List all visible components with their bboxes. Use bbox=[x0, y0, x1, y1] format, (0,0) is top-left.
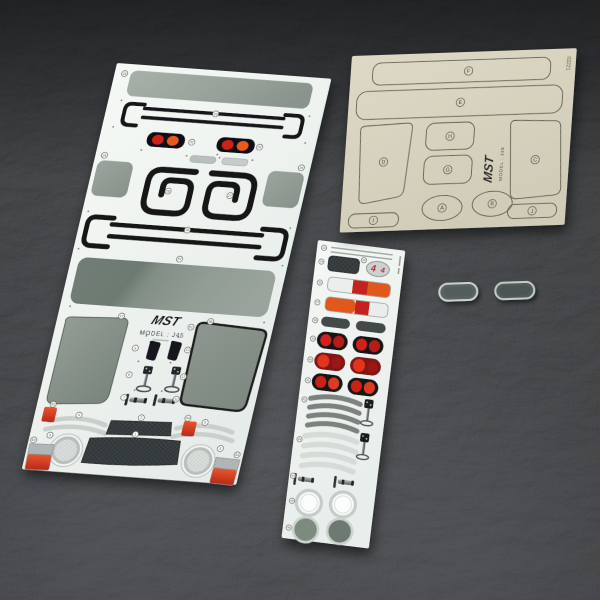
mesh-patch-decal bbox=[327, 255, 360, 274]
clear-ring-decal bbox=[329, 491, 357, 519]
badge-number: 4 bbox=[369, 263, 376, 274]
part-number-label: D bbox=[381, 160, 385, 166]
clear-ring-decal bbox=[295, 489, 323, 517]
green-lens-decal bbox=[326, 517, 354, 545]
corner-lamp-decal-left bbox=[25, 444, 54, 471]
part-number-label: F bbox=[467, 69, 471, 75]
sheet-code-text: 02221 bbox=[564, 56, 571, 70]
capsule-decal-right bbox=[495, 282, 535, 300]
part-number-label: H bbox=[448, 134, 452, 140]
part-number-label: C bbox=[533, 157, 537, 163]
tail-light-decal-left bbox=[145, 131, 186, 149]
masking-sheet: MST MODEL : J45 02221 FEDHGCABIJ bbox=[340, 48, 577, 232]
sheet-code-vertical: 02221 bbox=[564, 56, 571, 70]
decal-sheets-photo: MST MODEL : J45 bbox=[0, 0, 600, 600]
masking-sheet-paper bbox=[340, 48, 577, 232]
tail-light-decal-right bbox=[215, 137, 256, 155]
green-lens-decal bbox=[292, 516, 320, 544]
brand-logo-vertical: MST bbox=[481, 153, 497, 184]
brand-logo-text: MST bbox=[481, 153, 497, 183]
capsule-decal-left bbox=[439, 283, 478, 301]
part-number-label: G bbox=[445, 168, 449, 174]
